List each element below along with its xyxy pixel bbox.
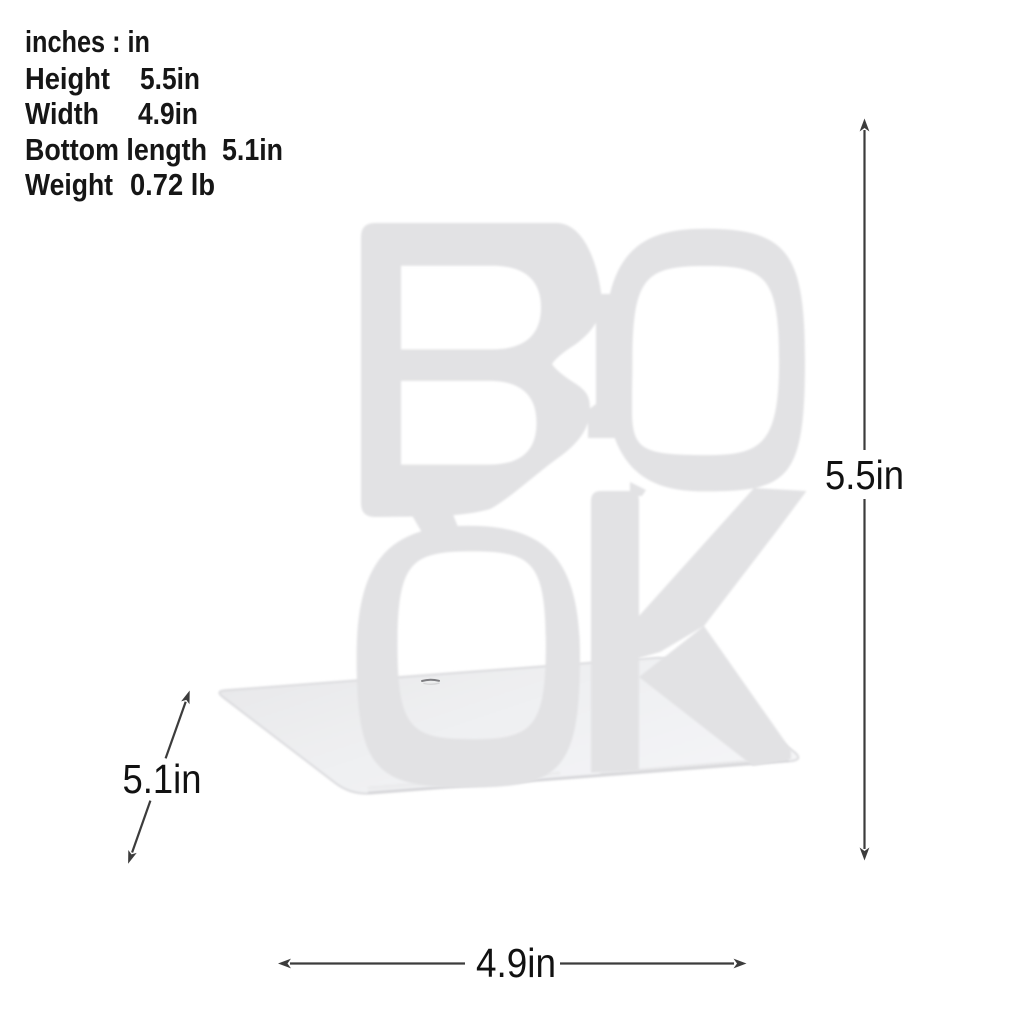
svg-text:Height: Height (25, 61, 110, 96)
svg-text:5.1in: 5.1in (123, 756, 202, 802)
svg-text:5.5in: 5.5in (140, 61, 200, 96)
svg-text:4.9in: 4.9in (138, 96, 198, 131)
svg-text:Weight: Weight (25, 167, 113, 202)
svg-text:0.72 lb: 0.72 lb (130, 167, 215, 202)
svg-text:Bottom length: Bottom length (25, 132, 207, 167)
svg-text:inches : in: inches : in (25, 24, 150, 59)
svg-text:5.5in: 5.5in (825, 452, 904, 498)
svg-text:4.9in: 4.9in (476, 940, 556, 986)
svg-text:Width: Width (25, 96, 99, 131)
svg-text:5.1in: 5.1in (222, 132, 283, 167)
